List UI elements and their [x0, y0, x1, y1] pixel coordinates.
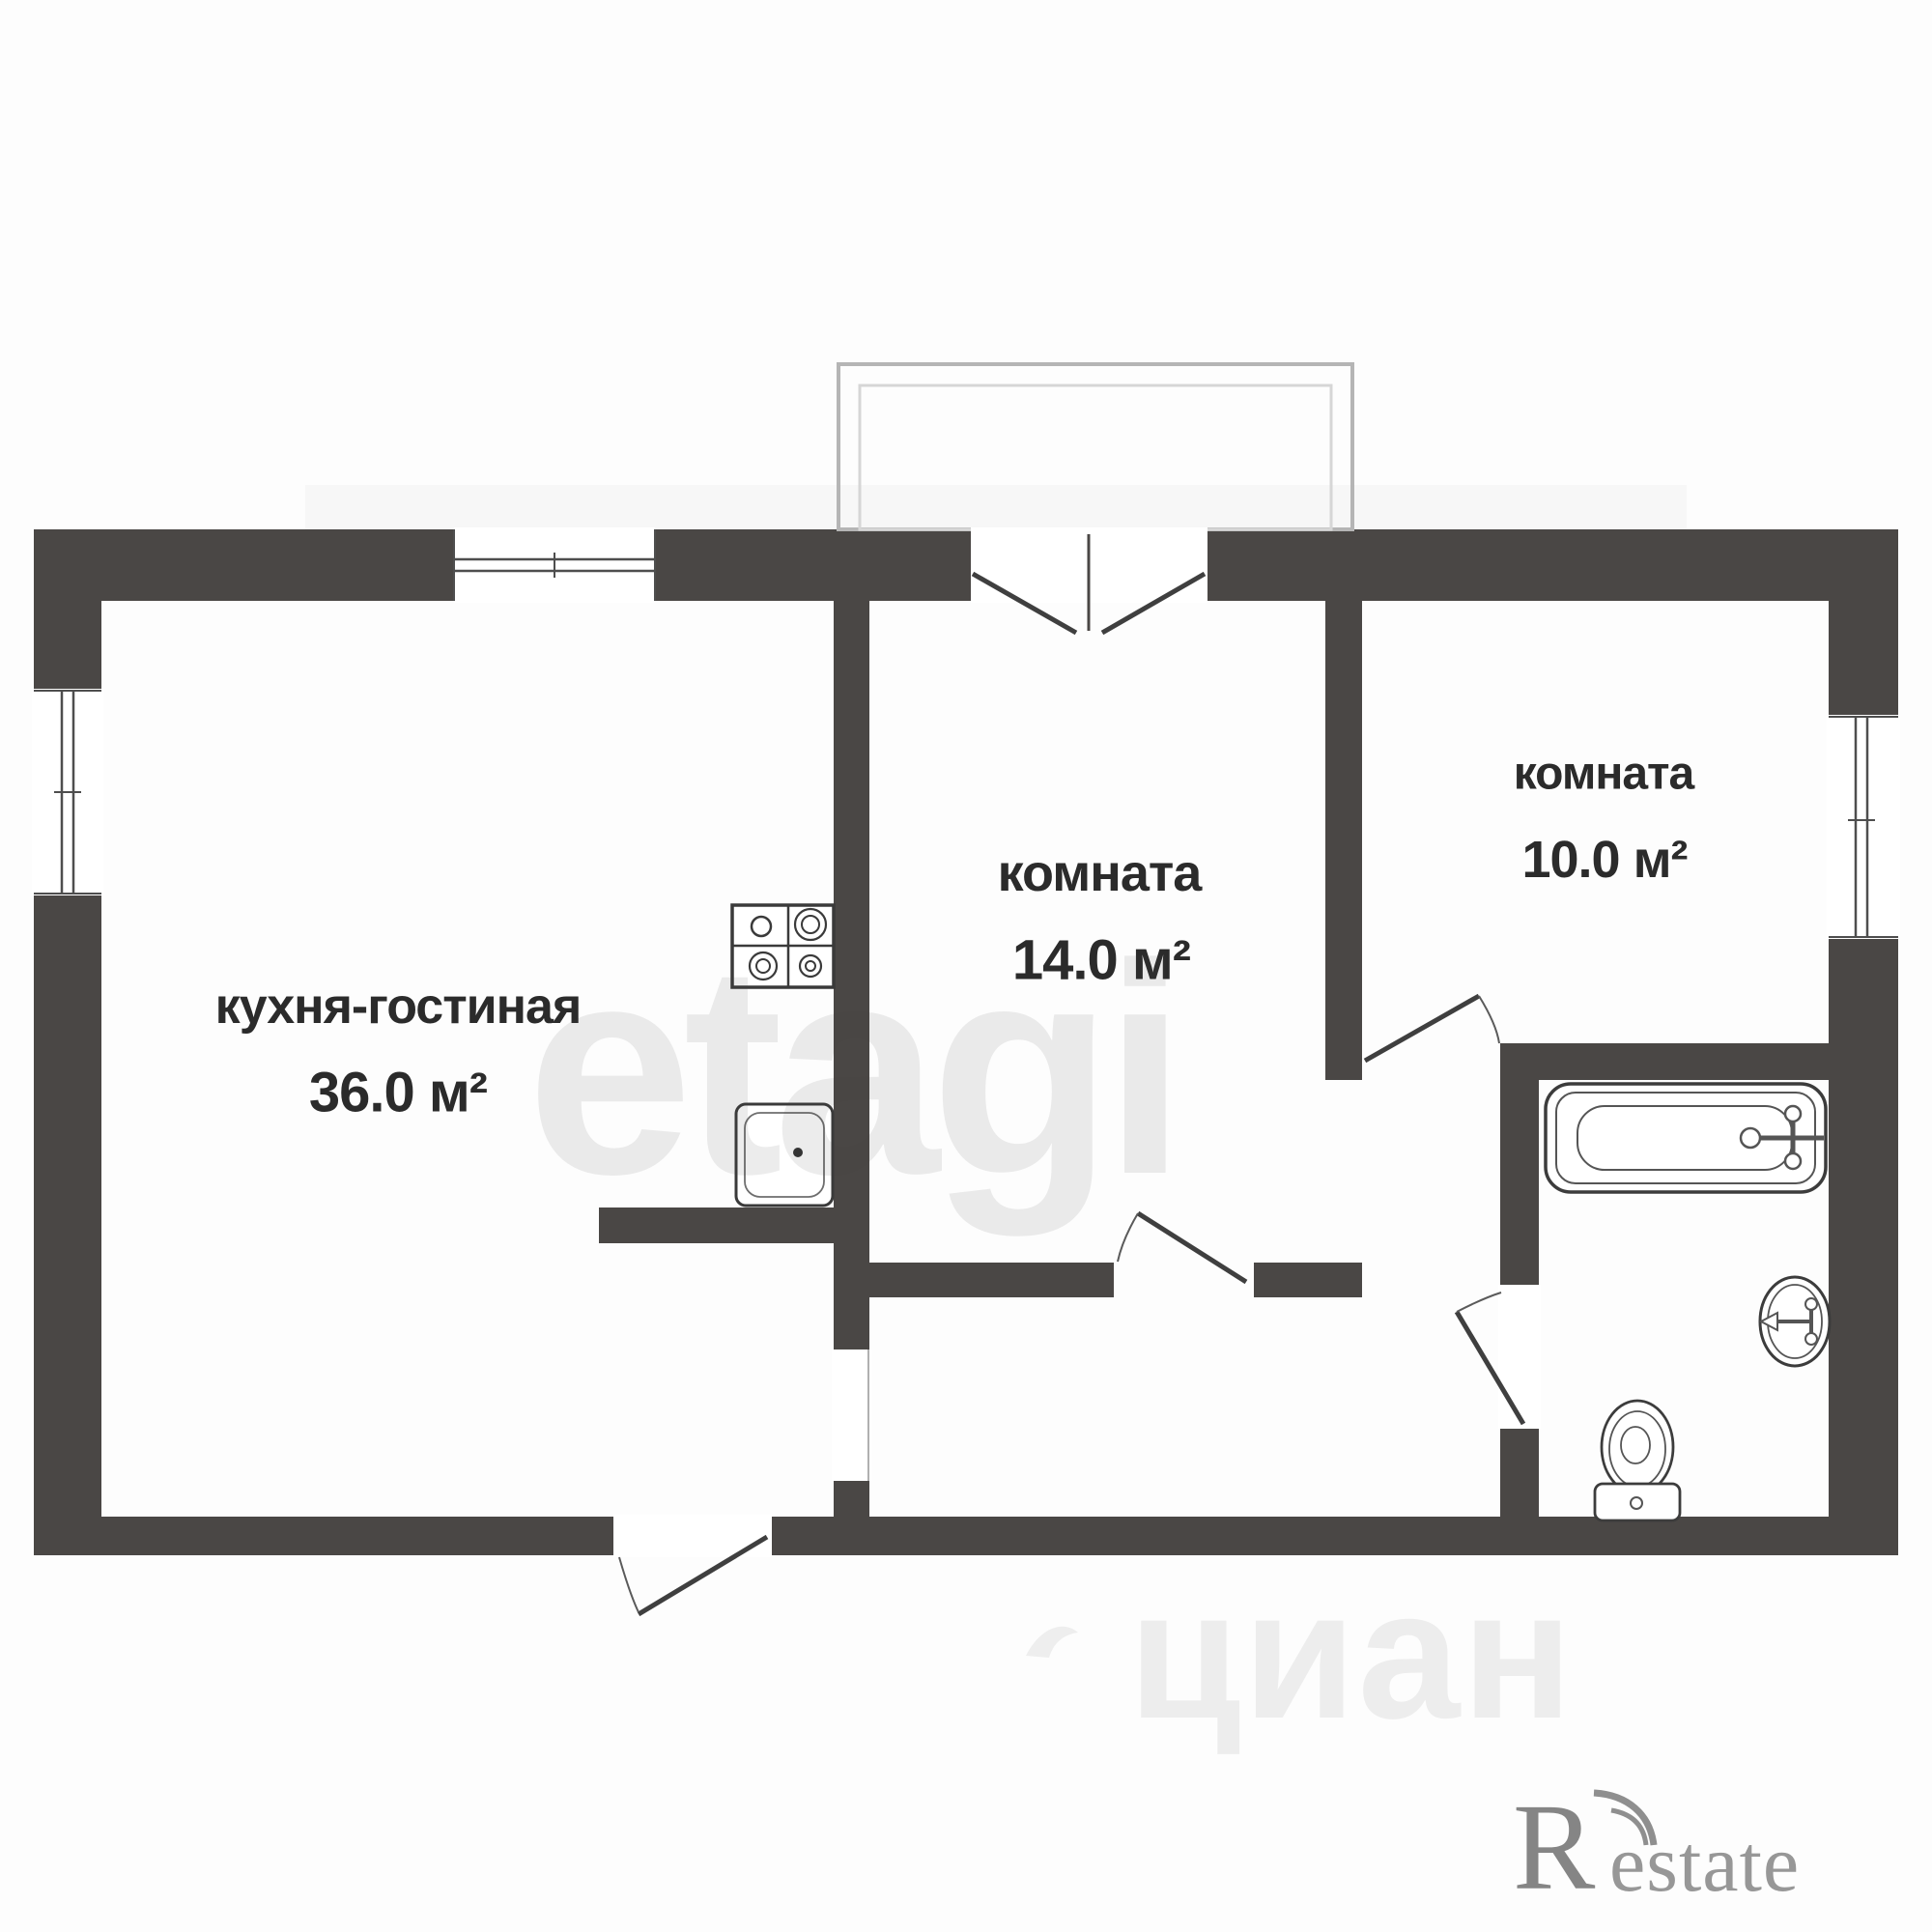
kitchen-sink-icon	[736, 1104, 833, 1206]
room-area-kitchen-living: 36.0 м²	[309, 1061, 487, 1125]
wall-top	[34, 529, 1898, 601]
wall-left	[34, 529, 101, 1555]
watermark-bird-icon	[1026, 1627, 1078, 1658]
wall-shadow	[305, 485, 1687, 529]
stove-icon	[732, 905, 834, 987]
wall-bathroom-left	[1500, 1080, 1539, 1519]
room-area-right: 10.0 м²	[1521, 830, 1687, 890]
balcony-railing-icon	[838, 364, 1352, 529]
wall-kitchen-middle	[834, 601, 869, 1519]
room-area-middle: 14.0 м²	[1012, 928, 1190, 993]
right-room-door-swing-icon	[1365, 996, 1499, 1061]
toilet-icon	[1595, 1401, 1680, 1520]
wall-right	[1829, 529, 1898, 1555]
brand-logo-restate: R estate	[1495, 1785, 1932, 1920]
middle-room-door-swing-icon	[1118, 1213, 1246, 1282]
brand-logo-letter: R	[1513, 1785, 1595, 1909]
room-name-middle: комната	[998, 843, 1202, 903]
wall-sink-stub	[599, 1207, 869, 1243]
plan-detail-layer	[0, 0, 1932, 1932]
wall-bottom	[34, 1517, 1898, 1555]
wall-middleroom-bottom-left	[869, 1263, 1114, 1297]
wall-middleroom-bottom-right	[1254, 1263, 1362, 1297]
bathtub-icon	[1546, 1084, 1826, 1192]
floor-plan: кухня-гостиная 36.0 м² комната 14.0 м² к…	[0, 0, 1932, 1932]
washbasin-icon	[1760, 1277, 1830, 1366]
watermark-cian: циан	[1128, 1549, 1575, 1760]
wall-middle-right	[1325, 601, 1362, 1080]
wall-bathroom-top	[1500, 1043, 1829, 1080]
room-name-kitchen-living: кухня-гостиная	[215, 978, 582, 1036]
brand-logo-text: estate	[1609, 1824, 1800, 1905]
room-name-right: комната	[1514, 748, 1693, 801]
